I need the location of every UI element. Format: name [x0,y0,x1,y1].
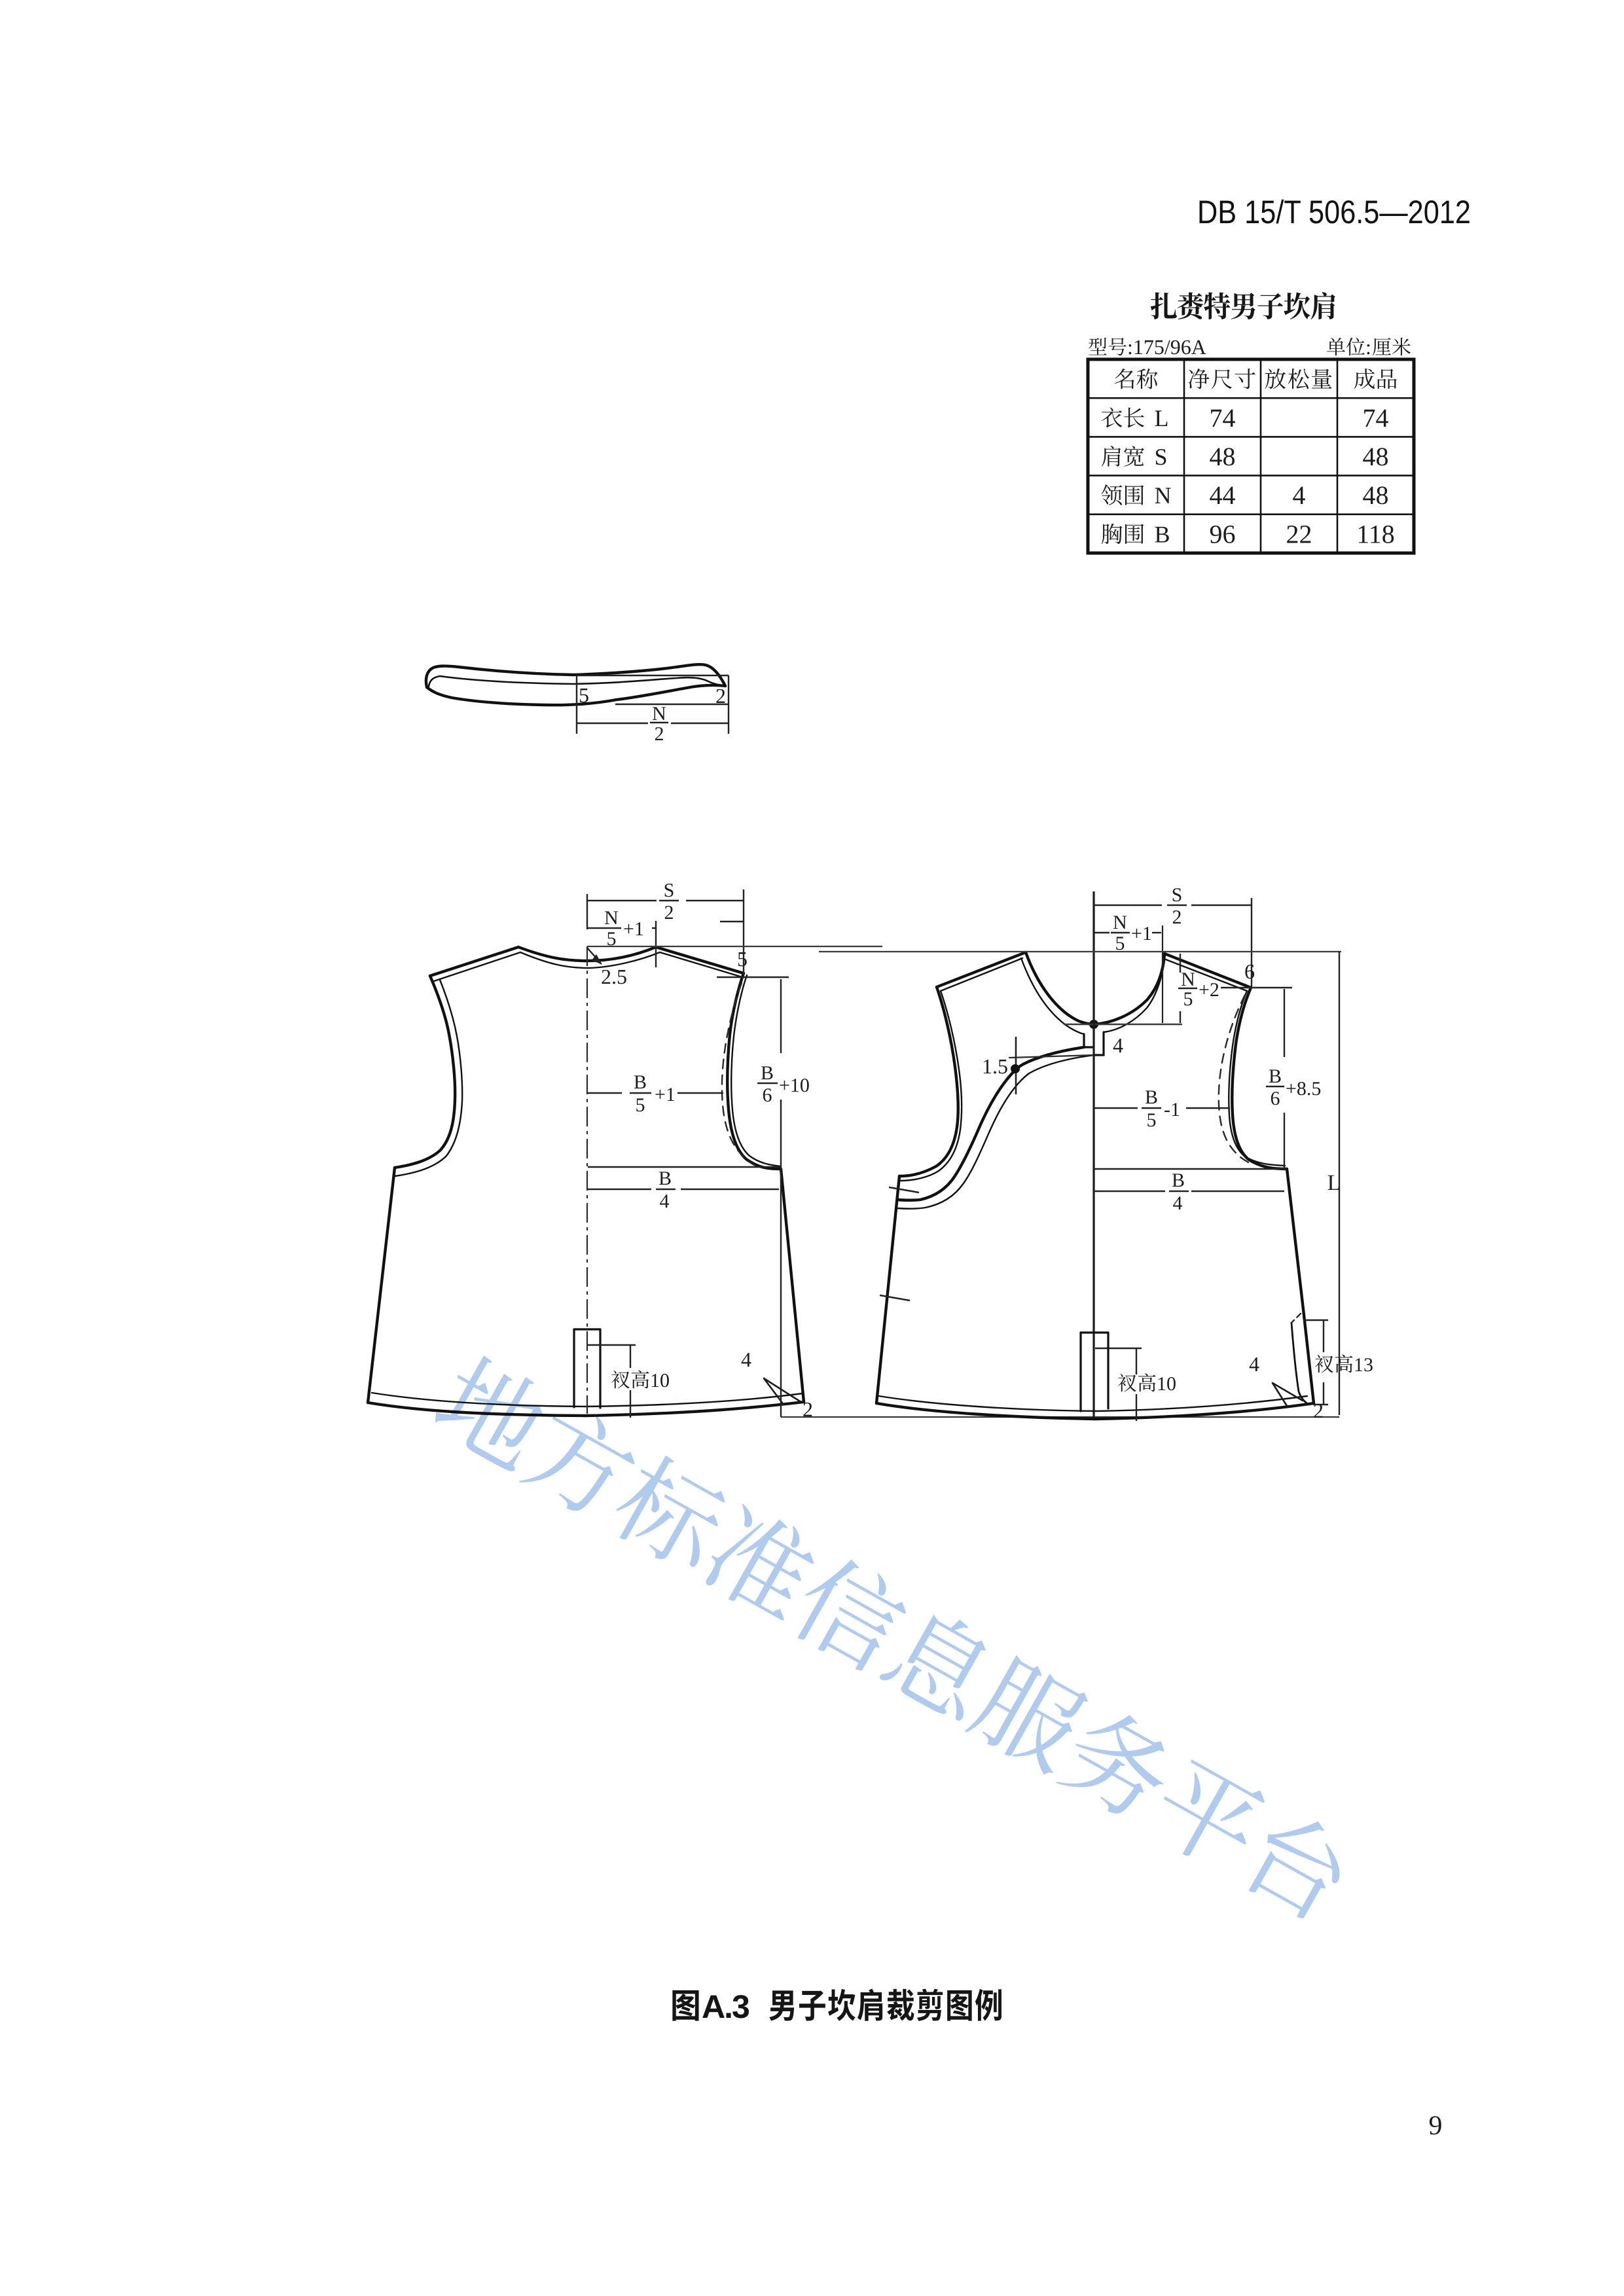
svg-text:10: 10 [1157,1373,1176,1395]
svg-text:2: 2 [664,902,674,924]
svg-text:4: 4 [1293,480,1306,510]
svg-text:B: B [1145,1086,1158,1108]
svg-text:+2: +2 [1199,979,1219,1001]
svg-text:13: 13 [1354,1354,1373,1376]
svg-text:1.5: 1.5 [982,1054,1008,1078]
svg-text:5: 5 [1147,1109,1157,1131]
svg-text:-1: -1 [1164,1099,1180,1121]
svg-text:B: B [1155,521,1170,547]
svg-text:5: 5 [636,1094,645,1116]
svg-text:118: 118 [1356,519,1395,548]
svg-text:5: 5 [1183,988,1193,1010]
svg-text:B: B [634,1071,647,1093]
svg-text:L: L [1155,405,1169,431]
svg-text:74: 74 [1210,403,1236,433]
svg-text:6: 6 [1244,960,1255,983]
svg-text:2: 2 [715,684,726,708]
svg-text:S: S [664,880,675,901]
svg-text:5: 5 [579,683,589,707]
svg-text:+1: +1 [655,1084,676,1105]
svg-text:N: N [604,907,619,929]
svg-text:+1: +1 [623,918,644,940]
svg-text:2: 2 [1172,906,1182,928]
svg-text:48: 48 [1363,480,1389,510]
svg-text:4: 4 [1249,1352,1259,1376]
svg-text:2: 2 [655,723,664,745]
svg-text:A.3: A.3 [702,1988,749,2025]
svg-text:+10: +10 [779,1075,810,1096]
svg-text:10: 10 [650,1370,670,1391]
svg-text:N: N [1155,482,1172,509]
svg-text:44: 44 [1210,480,1236,510]
svg-text:6: 6 [1271,1088,1280,1109]
svg-text:4: 4 [1173,1193,1183,1214]
svg-text:2: 2 [1313,1399,1324,1422]
svg-text:5: 5 [737,947,748,971]
svg-text:4: 4 [1113,1033,1123,1057]
svg-text:+8.5: +8.5 [1286,1078,1321,1100]
svg-text::: : [1365,335,1371,359]
svg-text:48: 48 [1210,442,1236,471]
svg-text:22: 22 [1286,519,1312,548]
svg-text:B: B [761,1062,774,1084]
svg-text:S: S [1155,444,1168,470]
svg-text:DB 15/T 506.5—2012: DB 15/T 506.5—2012 [1197,194,1471,230]
svg-text:L: L [1327,1171,1341,1195]
svg-text:6: 6 [763,1085,772,1106]
svg-text:N: N [652,703,666,725]
svg-text:48: 48 [1363,442,1389,471]
svg-text::175/96A: :175/96A [1127,335,1206,359]
svg-text:+1: +1 [1131,923,1152,944]
svg-text:4: 4 [741,1348,751,1371]
svg-text:S: S [1172,884,1183,906]
svg-text:N: N [1181,969,1195,990]
svg-text:2.5: 2.5 [601,965,627,988]
svg-text:B: B [1172,1170,1185,1191]
svg-text:B: B [1269,1066,1282,1087]
svg-text:B: B [659,1168,672,1189]
svg-text:N: N [1113,912,1127,933]
svg-text:74: 74 [1363,403,1389,433]
svg-text:9: 9 [1429,2111,1443,2141]
svg-text:4: 4 [660,1191,670,1212]
svg-text:96: 96 [1210,519,1236,548]
